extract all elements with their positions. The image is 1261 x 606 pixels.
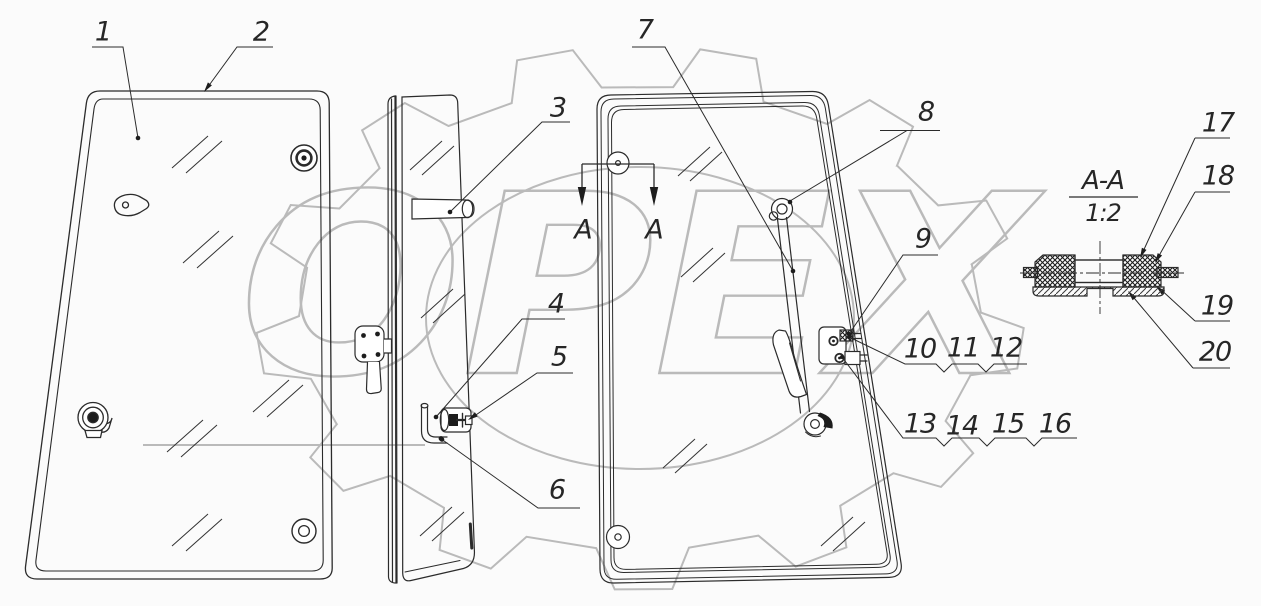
callout-15: 15 [992, 411, 1024, 438]
parts-diagram-canvas: OPEX [0, 0, 1261, 606]
callout-18: 18 [1202, 163, 1234, 190]
keyhole-slot [114, 194, 148, 215]
callout-20: 20 [1199, 339, 1231, 366]
grommet-right-block [1123, 255, 1161, 287]
callout-13: 13 [904, 411, 936, 438]
grommet-left-block [1035, 255, 1075, 287]
fastener-bottom-left [607, 526, 630, 549]
section-scale: 1:2 [1085, 201, 1121, 225]
pull-handle [412, 199, 474, 219]
callout-16: 16 [1039, 411, 1071, 438]
watermark-text: OPEX [240, 141, 1046, 432]
callout-4: 4 [548, 291, 564, 318]
callout-6: 6 [549, 477, 565, 504]
callout-9: 9 [915, 226, 931, 253]
lock-cylinder [78, 403, 112, 438]
callout-8: 8 [918, 99, 934, 126]
callout-17: 17 [1202, 110, 1234, 137]
section-cut-label-right: A [645, 217, 662, 244]
fastener-top-right [291, 145, 317, 171]
callout-1: 1 [95, 19, 111, 46]
grommet-flange [1033, 287, 1164, 296]
fastener-bottom-right [292, 519, 316, 543]
callout-2: 2 [253, 19, 269, 46]
fastener-top-left [607, 152, 629, 174]
callout-10: 10 [904, 336, 936, 363]
section-cut-label-left: A [574, 217, 591, 244]
callout-3: 3 [550, 95, 566, 122]
callout-5: 5 [551, 344, 567, 371]
diagram-linework: OPEX [0, 0, 1261, 606]
callout-11: 11 [947, 335, 979, 362]
section-title: A-A [1082, 168, 1124, 194]
callout-14: 14 [946, 413, 978, 440]
callout-12: 12 [990, 335, 1022, 362]
callout-7: 7 [637, 17, 653, 44]
callout-19: 19 [1201, 293, 1233, 320]
